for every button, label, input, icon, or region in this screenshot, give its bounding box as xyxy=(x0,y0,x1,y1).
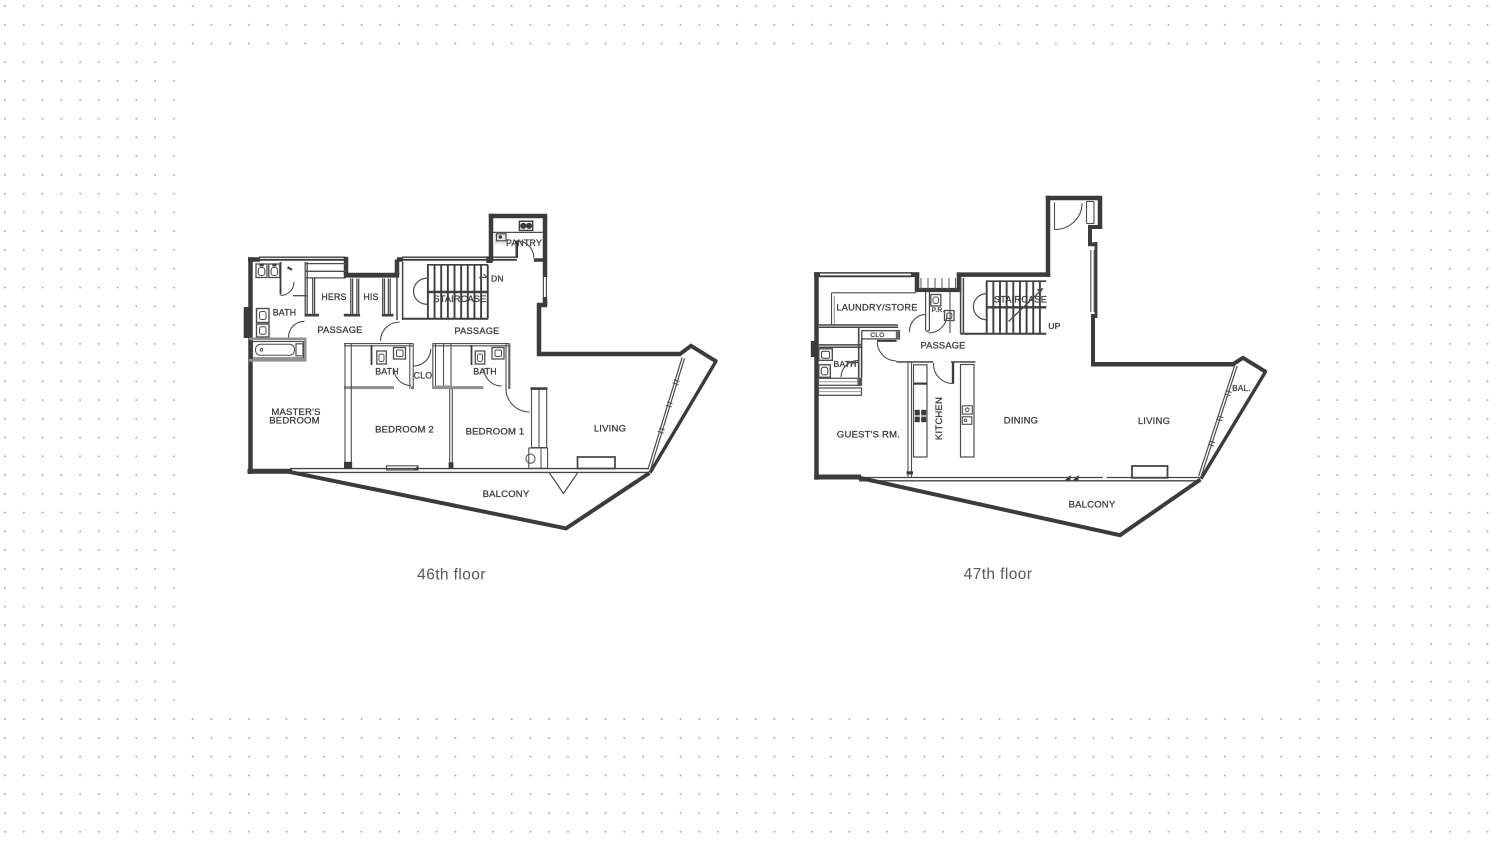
svg-text:HIS: HIS xyxy=(363,292,378,302)
svg-text:UP: UP xyxy=(1048,321,1060,331)
svg-text:BALCONY: BALCONY xyxy=(1069,500,1116,511)
svg-text:DINING: DINING xyxy=(1004,416,1038,427)
svg-text:BATH: BATH xyxy=(273,308,297,318)
svg-text:PASSAGE: PASSAGE xyxy=(920,341,965,351)
svg-text:P.R.: P.R. xyxy=(932,307,945,314)
svg-text:CLO: CLO xyxy=(870,332,884,339)
svg-text:BEDROOM 1: BEDROOM 1 xyxy=(466,427,525,438)
svg-text:LIVING: LIVING xyxy=(594,424,626,435)
svg-text:KITCHEN: KITCHEN xyxy=(934,397,945,440)
svg-text:LIVING: LIVING xyxy=(1138,416,1170,427)
svg-text:STAIRCASE: STAIRCASE xyxy=(433,294,486,304)
svg-text:BEDROOM: BEDROOM xyxy=(269,416,320,427)
svg-text:47th floor: 47th floor xyxy=(964,566,1033,583)
svg-text:PASSAGE: PASSAGE xyxy=(454,326,499,336)
svg-text:LAUNDRY/STORE: LAUNDRY/STORE xyxy=(836,303,917,313)
svg-text:BAL.: BAL. xyxy=(1232,384,1251,393)
svg-text:PANTRY: PANTRY xyxy=(506,238,542,248)
svg-text:STAIRCASE: STAIRCASE xyxy=(994,295,1047,305)
svg-text:BALCONY: BALCONY xyxy=(483,489,530,500)
svg-text:CLO: CLO xyxy=(414,371,433,381)
svg-text:PASSAGE: PASSAGE xyxy=(317,325,362,335)
svg-text:BATH: BATH xyxy=(833,359,856,369)
svg-text:BEDROOM 2: BEDROOM 2 xyxy=(375,425,434,436)
svg-text:GUEST'S RM.: GUEST'S RM. xyxy=(837,430,900,441)
svg-text:46th floor: 46th floor xyxy=(417,567,486,584)
svg-text:HERS: HERS xyxy=(321,292,346,302)
svg-text:DN: DN xyxy=(491,274,504,284)
